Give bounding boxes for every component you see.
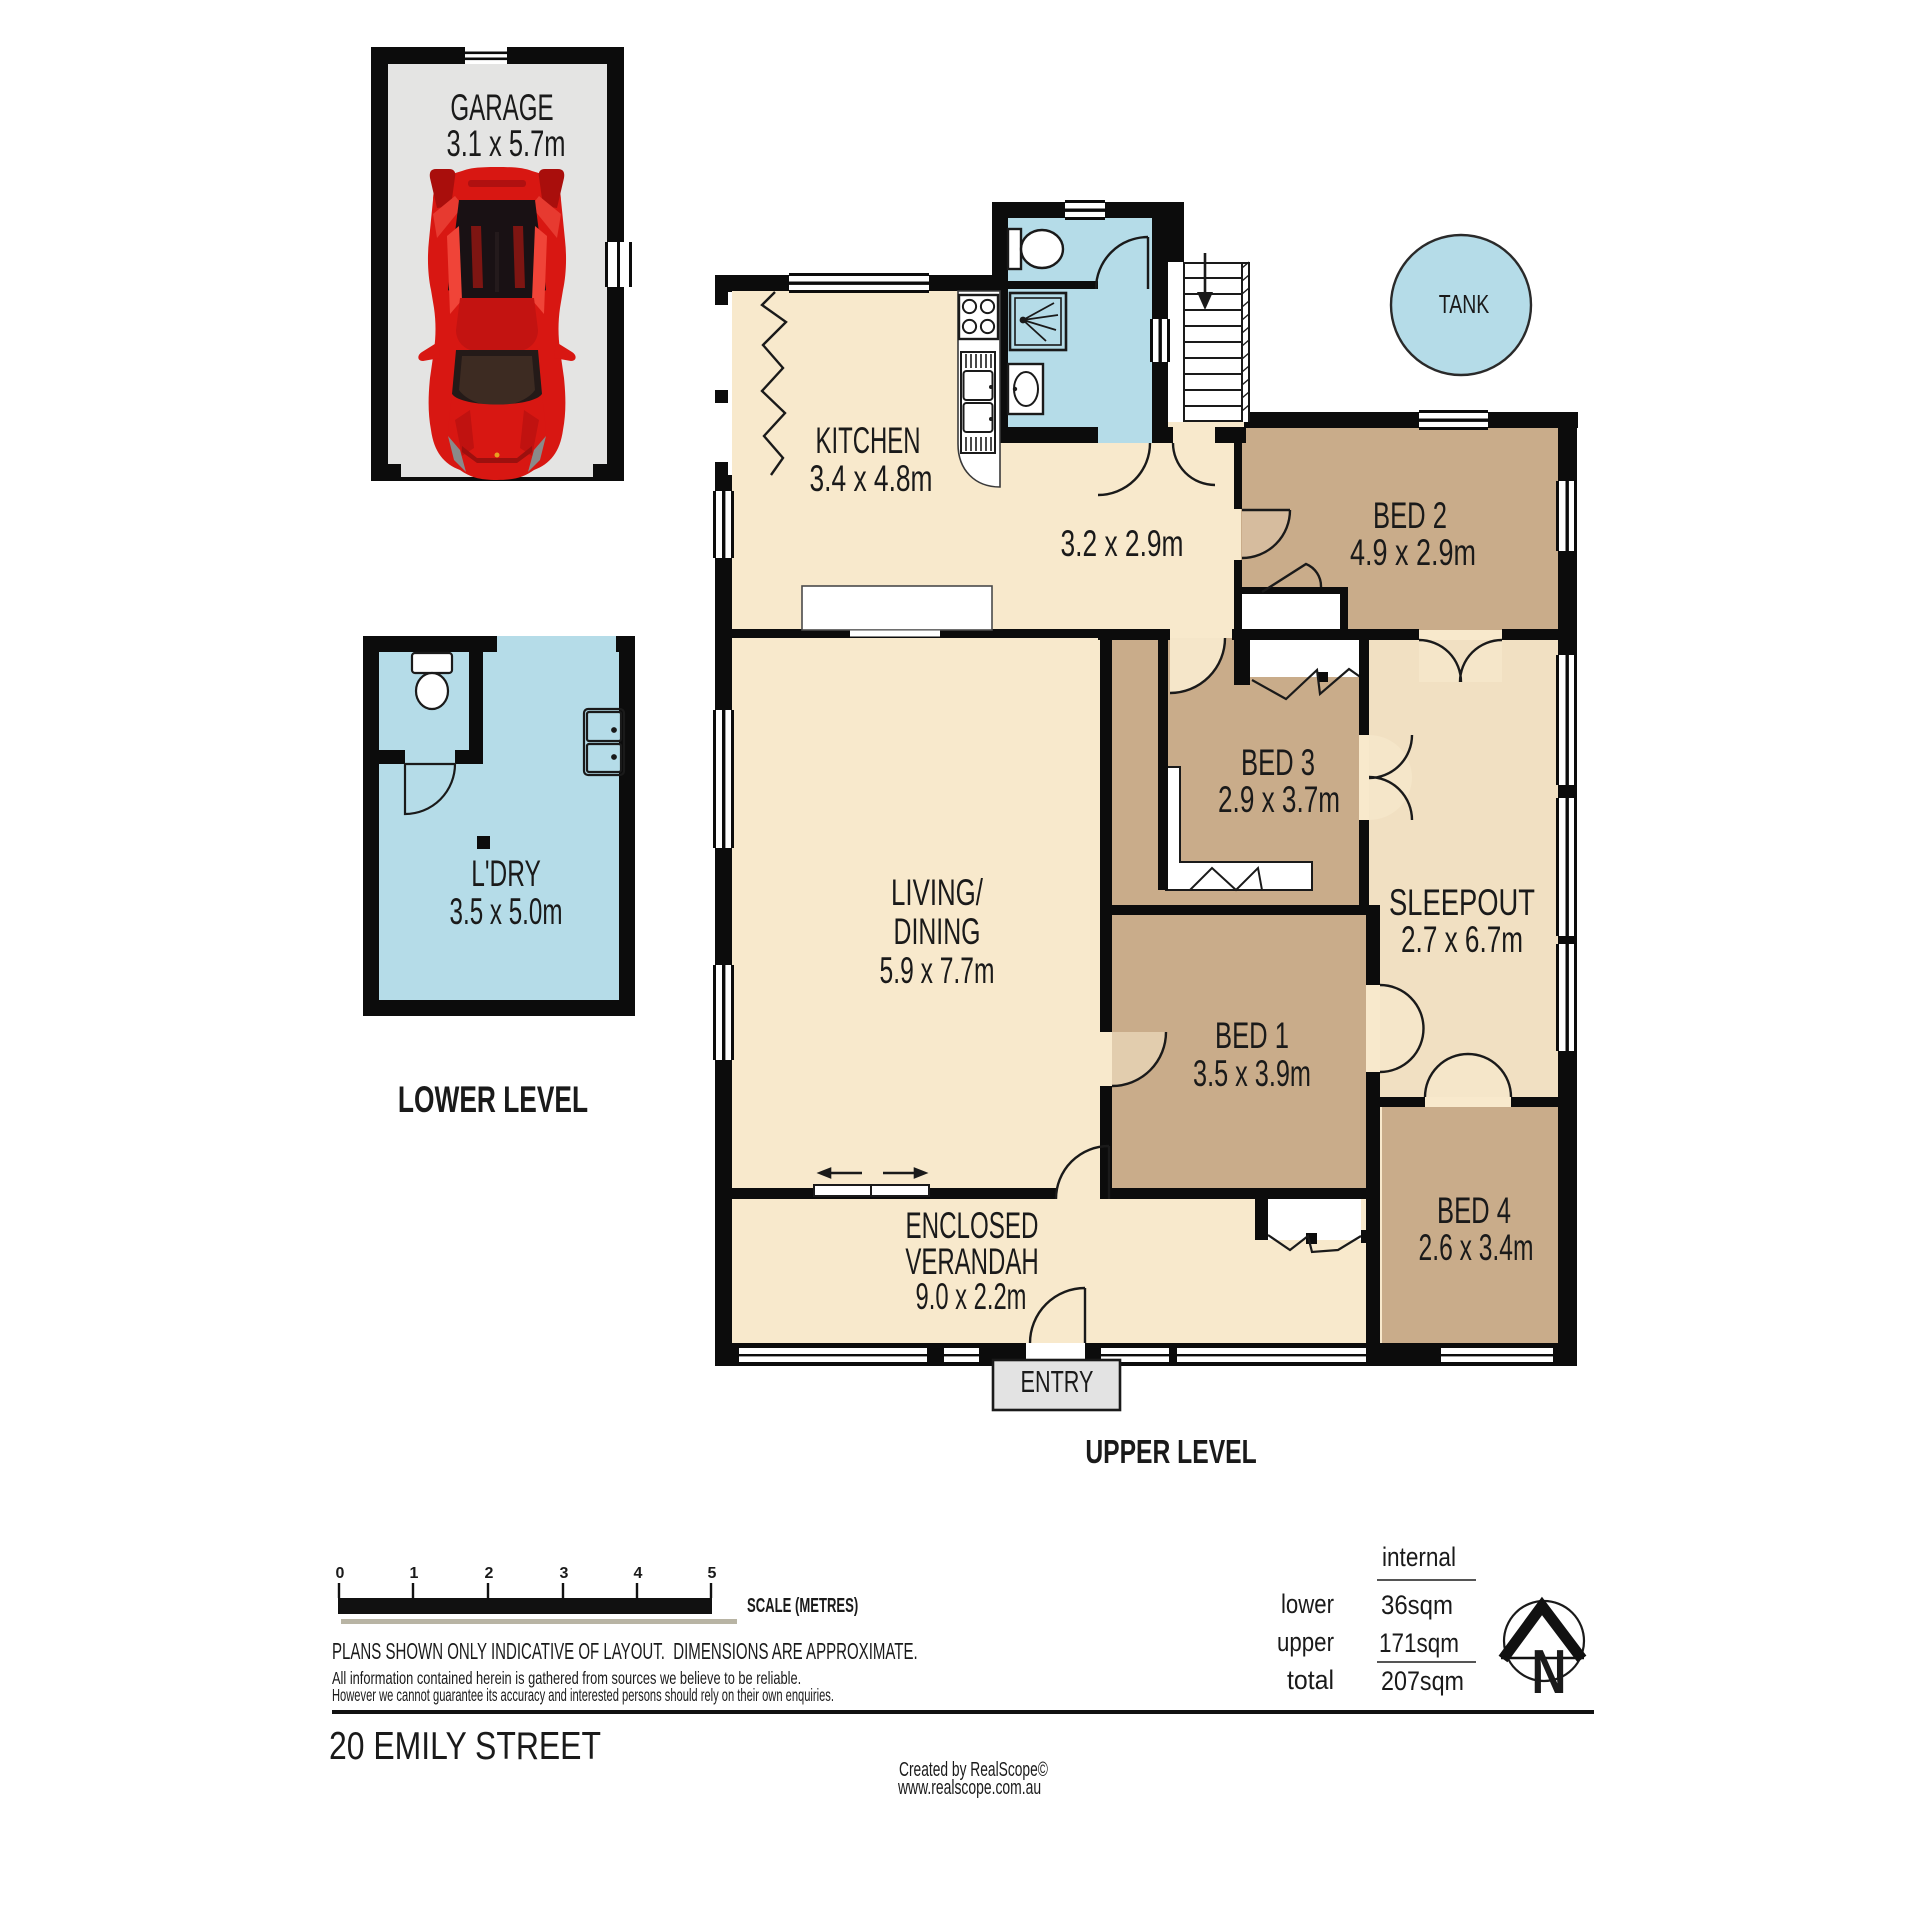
svg-text:BED 4: BED 4	[1437, 1189, 1511, 1231]
svg-text:5: 5	[708, 1565, 717, 1582]
svg-text:2.9 x 3.7m: 2.9 x 3.7m	[1218, 778, 1340, 820]
svg-text:2.6 x 3.4m: 2.6 x 3.4m	[1419, 1227, 1534, 1268]
svg-text:TANK: TANK	[1439, 289, 1490, 318]
svg-text:3.4 x 4.8m: 3.4 x 4.8m	[810, 458, 933, 499]
svg-text:5.9 x 7.7m: 5.9 x 7.7m	[880, 950, 995, 991]
svg-text:internal: internal	[1382, 1542, 1456, 1572]
svg-text:KITCHEN: KITCHEN	[816, 420, 921, 462]
svg-text:1: 1	[410, 1565, 419, 1582]
svg-text:3.1 x 5.7m: 3.1 x 5.7m	[447, 122, 566, 164]
svg-text:3: 3	[560, 1565, 569, 1582]
svg-text:BED 1: BED 1	[1215, 1014, 1289, 1056]
svg-text:4: 4	[634, 1565, 643, 1582]
svg-text:9.0 x 2.2m: 9.0 x 2.2m	[916, 1276, 1027, 1318]
svg-text:BED 3: BED 3	[1241, 741, 1315, 783]
svg-text:upper: upper	[1277, 1628, 1334, 1657]
svg-text:2: 2	[485, 1565, 494, 1582]
svg-text:36sqm: 36sqm	[1381, 1591, 1453, 1621]
svg-text:PLANS SHOWN ONLY INDICATIVE OF: PLANS SHOWN ONLY INDICATIVE OF LAYOUT. D…	[332, 1639, 918, 1665]
svg-text:www.realscope.com.au: www.realscope.com.au	[897, 1775, 1041, 1798]
svg-text:171sqm: 171sqm	[1379, 1629, 1459, 1658]
svg-text:L'DRY: L'DRY	[471, 853, 541, 894]
svg-text:2.7 x 6.7m: 2.7 x 6.7m	[1401, 918, 1523, 960]
svg-text:BED 2: BED 2	[1373, 494, 1447, 536]
svg-text:However we cannot guarantee it: However we cannot guarantee its accuracy…	[332, 1685, 834, 1705]
svg-text:LIVING/: LIVING/	[891, 871, 983, 913]
svg-text:SLEEPOUT: SLEEPOUT	[1389, 882, 1535, 923]
svg-text:207sqm: 207sqm	[1381, 1666, 1464, 1696]
svg-text:lower: lower	[1281, 1590, 1334, 1620]
svg-text:DINING: DINING	[894, 910, 981, 952]
svg-text:total: total	[1287, 1666, 1334, 1695]
svg-text:20 EMILY STREET: 20 EMILY STREET	[329, 1724, 601, 1768]
svg-text:4.9 x 2.9m: 4.9 x 2.9m	[1350, 532, 1476, 573]
svg-text:0: 0	[336, 1565, 345, 1582]
svg-text:3.2 x 2.9m: 3.2 x 2.9m	[1061, 523, 1184, 564]
svg-text:N: N	[1532, 1637, 1567, 1706]
svg-text:UPPER LEVEL: UPPER LEVEL	[1085, 1435, 1256, 1471]
svg-text:3.5 x 3.9m: 3.5 x 3.9m	[1193, 1052, 1311, 1094]
svg-text:SCALE (METRES): SCALE (METRES)	[747, 1594, 858, 1616]
svg-text:3.5 x 5.0m: 3.5 x 5.0m	[450, 891, 563, 932]
svg-text:ENTRY: ENTRY	[1021, 1364, 1094, 1399]
svg-text:LOWER LEVEL: LOWER LEVEL	[398, 1079, 588, 1120]
